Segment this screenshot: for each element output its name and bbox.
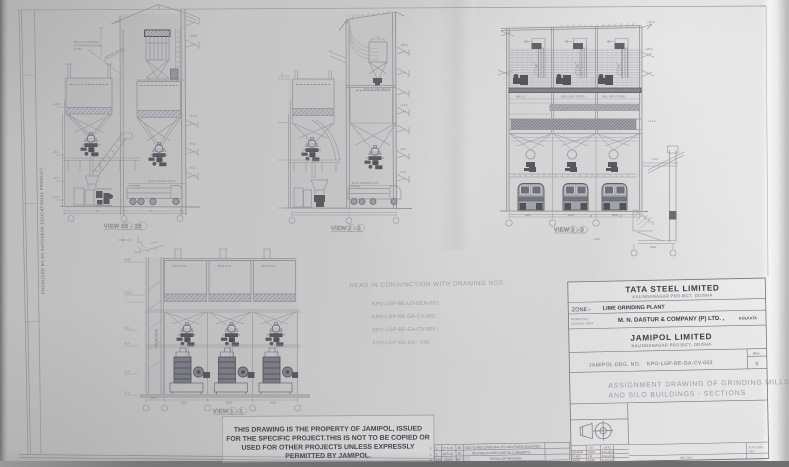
svg-text:DETAIL OF REVISION: DETAIL OF REVISION <box>490 456 521 461</box>
svg-text:+59.4 TO S: +59.4 TO S <box>217 264 231 268</box>
svg-text:PRODUCED BY AN AUTODESK EDUCAT: PRODUCED BY AN AUTODESK EDUCATIONAL PROD… <box>39 167 46 294</box>
svg-text:8000: 8000 <box>568 213 575 217</box>
svg-text:+8.0: +8.0 <box>53 150 59 154</box>
svg-text:BAG FILTER ABOVE: BAG FILTER ABOVE <box>364 87 391 91</box>
svg-text:KPO-LGP-BE-GA-CV-004 :: KPO-LGP-BE-GA-CV-004 : <box>372 326 438 333</box>
svg-text:FOR THE SPECIFIC PROJECT.THIS: FOR THE SPECIFIC PROJECT.THIS IS NOT TO … <box>226 434 430 442</box>
svg-text:KPO-LGP-BE-GA-CV-002.: KPO-LGP-BE-GA-CV-002. <box>372 313 437 320</box>
svg-text:+3.4: +3.4 <box>124 370 130 374</box>
svg-text:6000: 6000 <box>226 401 233 405</box>
svg-text:+14.2: +14.2 <box>400 103 408 107</box>
svg-text:28.5.14: 28.5.14 <box>442 452 453 456</box>
svg-text:BY: BY <box>457 457 461 461</box>
svg-text:+24.0: +24.0 <box>124 258 132 262</box>
svg-text:27.6.14: 27.6.14 <box>442 446 453 450</box>
svg-text:REV: REV <box>753 352 761 356</box>
svg-text:+16.0: +16.0 <box>124 291 132 295</box>
svg-text:THIS DRAWING IS THE PROPERTY O: THIS DRAWING IS THE PROPERTY OF JAMIPOL,… <box>234 426 422 434</box>
svg-text:+28.5: +28.5 <box>189 34 197 38</box>
svg-text:+8.0: +8.0 <box>652 157 658 161</box>
svg-text:2: 2 <box>436 446 438 450</box>
svg-text:4000: 4000 <box>525 213 532 217</box>
svg-text:+16.0: +16.0 <box>53 102 61 106</box>
svg-text:+0.0: +0.0 <box>53 195 59 199</box>
svg-text:(TYP): (TYP) <box>74 47 82 51</box>
svg-text:8000: 8000 <box>612 213 619 217</box>
svg-text:+26.0: +26.0 <box>400 43 408 47</box>
svg-text:3: 3 <box>755 361 758 367</box>
svg-text:BULK TANKER (FUT): BULK TANKER (FUT) <box>148 179 175 183</box>
svg-text:LIME GRINDING PLANT: LIME GRINDING PLANT <box>603 305 666 312</box>
svg-text:+31.5: +31.5 <box>647 20 655 24</box>
svg-text:+4.5: +4.5 <box>53 176 59 180</box>
svg-text:KPO-LGP-BE-GA- -005: KPO-LGP-BE-GA- -005 <box>373 340 430 347</box>
svg-text:A.DB: A.DB <box>588 458 595 462</box>
svg-text:+14.2: +14.2 <box>189 114 197 118</box>
svg-text:ZONE:-: ZONE:- <box>572 307 591 313</box>
svg-text:REV: REV <box>749 449 755 453</box>
svg-text:1: 1 <box>436 452 438 456</box>
svg-text:+8.0: +8.0 <box>400 147 406 151</box>
svg-text:MILL-3(FUTURE): MILL-3(FUTURE) <box>602 95 626 99</box>
svg-text:REV: REV <box>436 458 443 462</box>
svg-text:+0.0: +0.0 <box>124 391 130 395</box>
svg-text:+8.0: +8.0 <box>124 342 130 346</box>
svg-text:+59.4 TO S: +59.4 TO S <box>261 264 275 268</box>
svg-text:+4.5: +4.5 <box>400 170 406 174</box>
svg-text:STAIRCASE: STAIRCASE <box>155 328 159 349</box>
svg-text:6000: 6000 <box>181 401 188 405</box>
svg-text:JB: JB <box>457 452 461 456</box>
svg-text:JB: JB <box>457 446 461 450</box>
svg-text:BULK TANKER (FUT): BULK TANKER (FUT) <box>352 181 379 185</box>
svg-text:2000: 2000 <box>150 396 157 400</box>
svg-text:PERMITTED BY JAMIPOL.: PERMITTED BY JAMIPOL. <box>285 453 371 461</box>
svg-text:READ IN CONJUNCTION WITH DRAWI: READ IN CONJUNCTION WITH DRAWING NOS. <box>350 280 506 290</box>
svg-text:+26.0: +26.0 <box>645 47 653 51</box>
svg-text:MILL-2(FUTURE): MILL-2(FUTURE) <box>561 95 585 99</box>
svg-text:KOLKATA: KOLKATA <box>739 316 757 320</box>
svg-text:MILL-1: MILL-1 <box>516 95 526 99</box>
svg-text:IMP DWG: IMP DWG <box>680 456 694 460</box>
svg-text:DATE: DATE <box>445 458 453 462</box>
svg-text:VIEW 2B - 2B: VIEW 2B - 2B <box>104 224 142 230</box>
svg-text:6000: 6000 <box>270 401 277 405</box>
svg-text:JAMIPOL DRG. NO.: JAMIPOL DRG. NO. <box>589 362 641 369</box>
svg-text:4000: 4000 <box>650 245 657 249</box>
svg-text:CONSULTANT: CONSULTANT <box>571 321 594 325</box>
svg-text:+11.2: +11.2 <box>124 326 131 330</box>
svg-text:+0.0: +0.0 <box>594 237 600 241</box>
svg-text:USED FOR OTHER PROJECTS UNLESS: USED FOR OTHER PROJECTS UNLESS EXPRESSLY <box>241 444 415 452</box>
svg-text:+9.5: +9.5 <box>189 142 196 146</box>
svg-text:KPO-LGP-BE-LO-GEN-001.: KPO-LGP-BE-LO-GEN-001. <box>372 300 441 307</box>
svg-text:+11.2: +11.2 <box>648 119 656 123</box>
svg-text:+5.0: +5.0 <box>189 166 196 170</box>
svg-text:+59.4 TO S: +59.4 TO S <box>172 264 186 268</box>
